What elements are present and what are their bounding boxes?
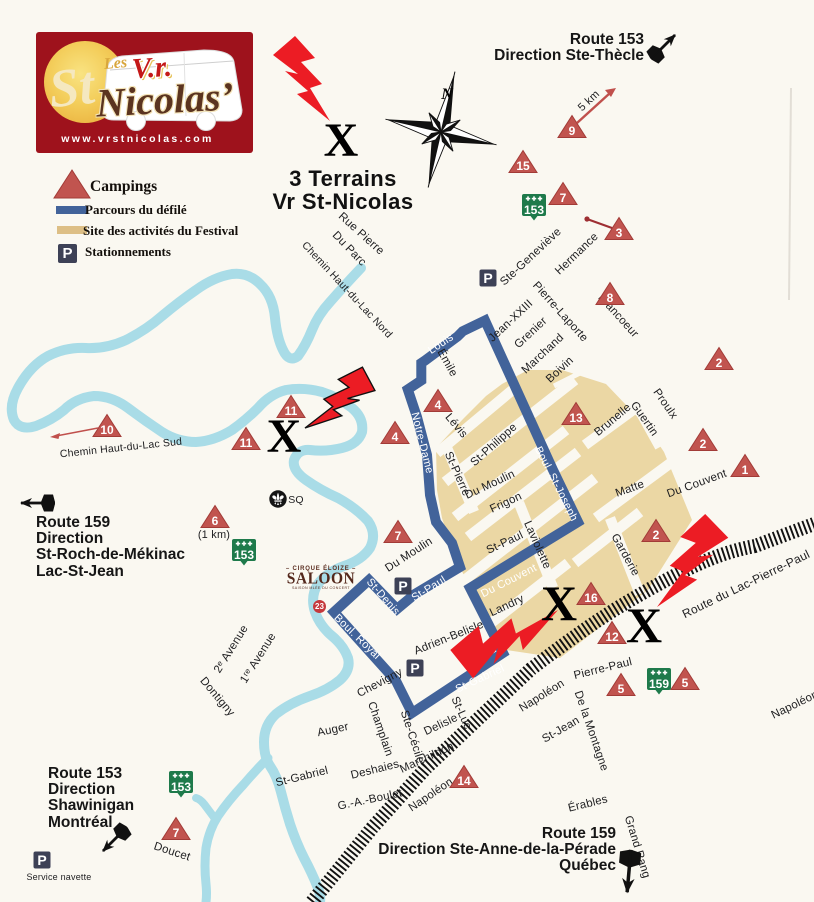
svg-text:3: 3 — [616, 226, 623, 240]
svg-text:2: 2 — [700, 437, 707, 451]
svg-text:14: 14 — [457, 774, 471, 788]
svg-text:7: 7 — [173, 826, 180, 840]
svg-text:2: 2 — [716, 356, 723, 370]
svg-text:X: X — [626, 597, 662, 653]
svg-text:X: X — [324, 114, 359, 167]
svg-text:4: 4 — [392, 430, 399, 444]
svg-text:7: 7 — [395, 529, 402, 543]
svg-text:11: 11 — [240, 436, 253, 450]
svg-text:X: X — [267, 410, 302, 463]
svg-text:159: 159 — [649, 677, 669, 691]
svg-text:12: 12 — [605, 630, 619, 644]
svg-text:X: X — [541, 575, 577, 631]
svg-text:153: 153 — [234, 548, 254, 562]
svg-text:13: 13 — [569, 411, 583, 425]
svg-text:8: 8 — [607, 291, 614, 305]
svg-text:5: 5 — [682, 676, 689, 690]
svg-text:6: 6 — [212, 514, 219, 528]
svg-text:153: 153 — [524, 203, 544, 217]
svg-text:2: 2 — [653, 528, 660, 542]
svg-text:9: 9 — [569, 124, 576, 138]
svg-text:153: 153 — [171, 780, 191, 794]
svg-text:7: 7 — [560, 191, 567, 205]
svg-text:5: 5 — [618, 682, 625, 696]
svg-text:1: 1 — [742, 463, 749, 477]
svg-text:4: 4 — [435, 398, 442, 412]
svg-text:10: 10 — [100, 423, 114, 437]
svg-text:16: 16 — [584, 591, 598, 605]
svg-text:15: 15 — [516, 159, 530, 173]
